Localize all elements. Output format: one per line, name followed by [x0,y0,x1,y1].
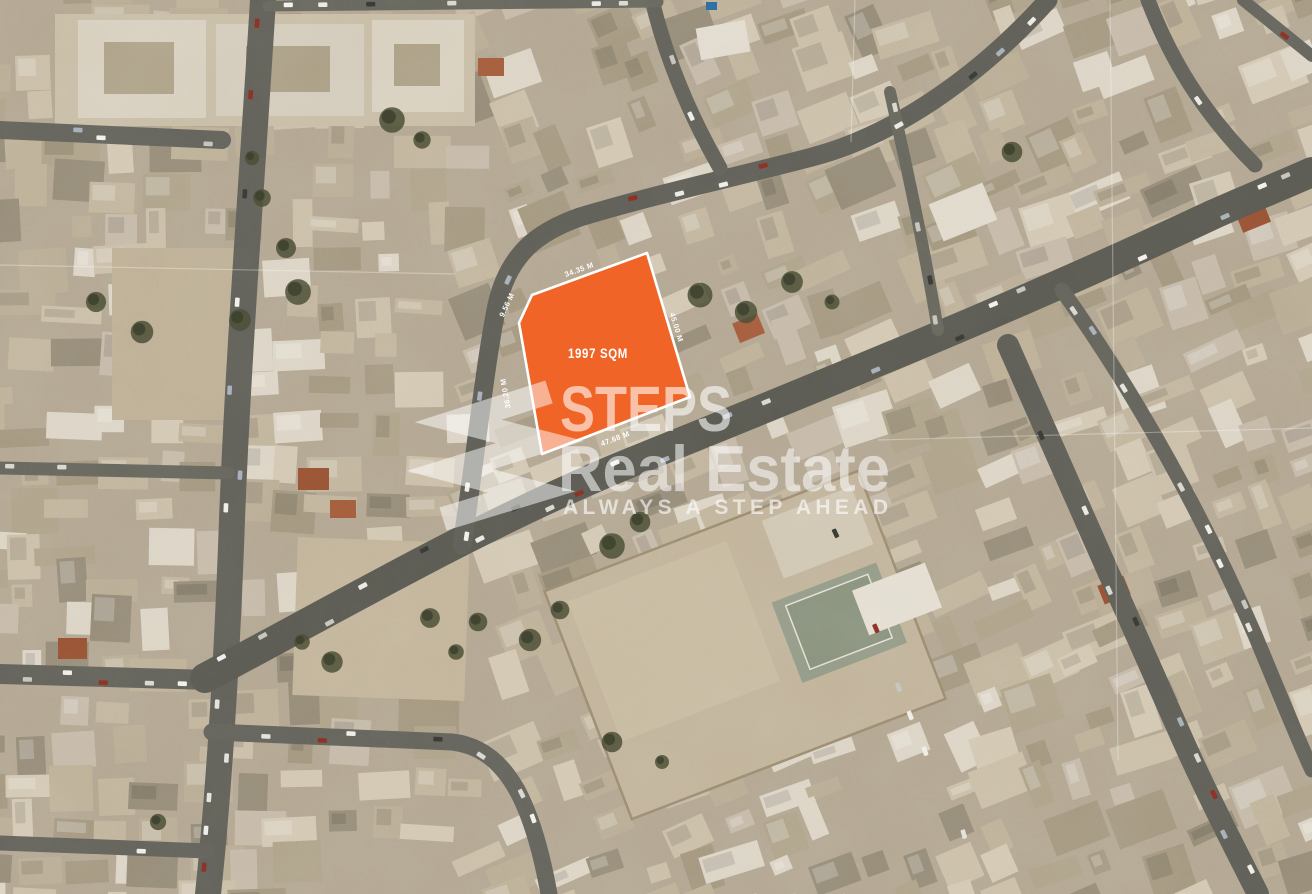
brand-name-line2: Real Estate [558,432,890,505]
satellite-map-image: 1997 SQM 34.35 M 9.56 M 45.00 M 36.20 M … [0,0,1312,894]
map-canvas: 1997 SQM 34.35 M 9.56 M 45.00 M 36.20 M … [0,0,1312,894]
plot-area-label: 1997 SQM [568,345,628,361]
brand-tagline: ALWAYS A STEP AHEAD [563,496,888,519]
